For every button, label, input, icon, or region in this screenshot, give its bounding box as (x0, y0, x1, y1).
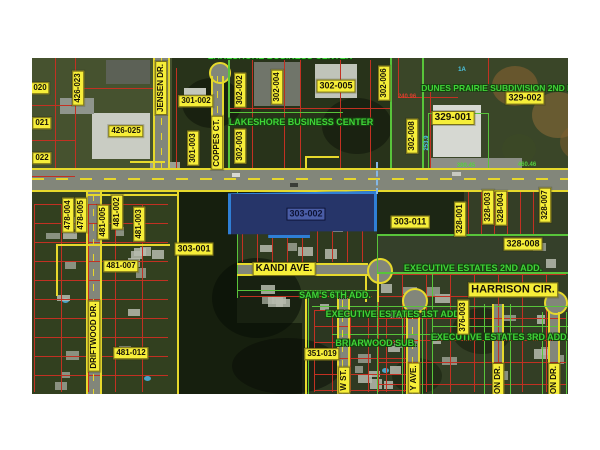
parcel-label: 021 (32, 117, 51, 129)
subdivision-boundary (422, 58, 424, 170)
parcel-label: 022 (32, 152, 51, 164)
lot-line (115, 204, 116, 392)
building (65, 262, 76, 269)
vehicle (452, 172, 461, 176)
parcel-label: 328-004 (495, 190, 507, 225)
block-boundary (305, 156, 307, 168)
subdivision-boundary (542, 312, 543, 394)
parcel-label: 302-004 (271, 69, 283, 104)
survey-dimension: 460.46 (518, 162, 536, 168)
block-boundary (177, 192, 179, 394)
subdivision-boundary (484, 304, 485, 394)
block-boundary (130, 161, 165, 163)
road-label: JENSEN DR. (155, 61, 167, 115)
subdivision-boundary (377, 234, 568, 236)
lot-line (32, 140, 75, 141)
block-boundary (88, 194, 178, 196)
lot-line (34, 204, 35, 392)
parcel-label: 481-005 (97, 204, 109, 239)
parcel-label: 376-003 (457, 299, 469, 334)
subdivision-boundary (312, 306, 568, 307)
highway-centerline (32, 178, 568, 180)
lot-line (55, 58, 56, 168)
subdivision-boundary (228, 112, 343, 113)
subdivision-boundary (422, 310, 423, 394)
subdivision-label: LAKESHORE BUSINESS CENTER (229, 117, 374, 127)
selected-parcel-label: 303-002 (286, 208, 325, 221)
survey-dimension: 253.9 (424, 135, 430, 150)
lot-line (533, 192, 534, 234)
subdivision-label: LAKESHORE BUSINESS CENTER (208, 58, 353, 61)
scanned-parcel-map-page: 020021022426-023426-025301-002301-003302… (0, 0, 600, 450)
parcel-label: 478-005 (75, 197, 87, 232)
block-boundary (377, 274, 379, 302)
terrain-patch (377, 192, 465, 236)
lot-line (404, 310, 405, 392)
lot-line (32, 105, 75, 106)
building (546, 259, 557, 268)
parcel-label: 328-001 (454, 201, 466, 236)
subdivision-boundary (510, 304, 511, 394)
parcel-label: 301-003 (187, 130, 199, 165)
parcel-label: 426-023 (72, 70, 84, 105)
subdivision-label: EXECUTIVE ESTATES 3RD ADD. (431, 332, 568, 342)
subdivision-label: SAM'S 6TH ADD. (299, 290, 371, 300)
subdivision-boundary (228, 58, 230, 170)
parcel-label: 302-006 (378, 65, 390, 100)
parcel-label: 329-002 (505, 92, 544, 105)
parcel-label: 481-002 (111, 194, 123, 229)
road-label: W ST. (338, 366, 350, 393)
lot-line (314, 390, 406, 391)
parcel-label: 302-005 (316, 80, 355, 93)
parcel-label: 478-004 (62, 197, 74, 232)
building (298, 247, 313, 256)
parcel-label: 328-007 (539, 187, 551, 222)
survey-dimension: 300.45 (457, 163, 475, 169)
building (106, 60, 150, 84)
lot-line (300, 60, 301, 168)
lot-line (252, 60, 253, 168)
parcel-label: 328-003 (482, 189, 494, 224)
building (381, 284, 392, 293)
building (152, 250, 164, 258)
road-label: COPPES CT. (211, 116, 223, 170)
road-label: ON DR. (492, 363, 504, 394)
vehicle (290, 183, 298, 187)
parcel-label: 328-008 (503, 238, 542, 251)
parcel-map-canvas[interactable]: 020021022426-023426-025301-002301-003302… (32, 58, 568, 394)
pool (144, 376, 151, 381)
block-boundary (56, 244, 58, 296)
road-label: Y AVE. (408, 362, 420, 393)
parcel-label: 302-003 (234, 128, 246, 163)
building (287, 243, 297, 251)
lot-line (468, 192, 469, 234)
terrain-patch (464, 192, 568, 234)
parcel-label: 302-008 (406, 118, 418, 153)
road-label: DRIFTWOOD DR. (88, 300, 100, 371)
road-label: ON DR. (548, 363, 560, 394)
subdivision-boundary (402, 310, 403, 394)
subdivision-label: DUNES PRAIRIE SUBDIVISION 2ND P (421, 83, 568, 93)
parcel-label: 481-003 (133, 206, 145, 241)
parcel-label: 351-019 (304, 348, 339, 360)
lot-line (426, 274, 427, 392)
lot-line (75, 88, 153, 89)
building (63, 232, 77, 238)
parcel-label: 426-025 (108, 125, 143, 137)
building (355, 366, 364, 373)
building (131, 251, 142, 258)
block-boundary (32, 168, 568, 170)
lot-line (368, 310, 369, 392)
parcel-label: 020 (32, 82, 50, 94)
parcel-label: 303-001 (174, 243, 213, 256)
lot-line (314, 326, 406, 327)
road-label: HARRISON CIR. (468, 282, 558, 297)
block-boundary (56, 244, 170, 246)
lot-line (350, 310, 351, 392)
parcel-label: 329-001 (432, 111, 475, 125)
lot-line (378, 274, 566, 275)
highway (32, 170, 568, 190)
lot-line (32, 176, 75, 177)
lot-line (430, 90, 431, 168)
road-label: KANDI AVE. (253, 262, 316, 276)
lot-line (370, 60, 371, 168)
parcel-label: 303-011 (391, 216, 430, 229)
parcel-label: 301-002 (178, 95, 213, 107)
tree-canopy (232, 338, 342, 394)
survey-dimension: 240.96 (398, 94, 416, 100)
subdivision-label: BRIARWOOD SUB. (335, 338, 416, 348)
subdivision-label: EXECUTIVE ESTATES 2ND ADD. (404, 263, 542, 273)
building (272, 297, 286, 304)
survey-dimension: 1A (458, 67, 466, 73)
lot-line (176, 68, 177, 168)
boundary-dashed-blue (376, 162, 378, 194)
subdivision-boundary (390, 58, 392, 170)
lot-line (520, 192, 521, 234)
lot-line (340, 60, 341, 168)
lot-line (386, 310, 387, 392)
lot-line (398, 58, 399, 98)
cul-de-sac (367, 258, 393, 284)
block-boundary (168, 58, 170, 168)
parcel-label: 481-007 (103, 260, 138, 272)
parcel-label: 302-002 (234, 72, 246, 107)
subdivision-boundary (488, 113, 489, 168)
block-boundary (305, 298, 307, 394)
building (46, 233, 59, 239)
subdivision-label: EXECUTIVE ESTATES 1ST ADD. (326, 309, 463, 319)
subdivision-boundary (308, 298, 309, 394)
lot-line (507, 192, 508, 234)
vehicle (232, 173, 240, 177)
parcel-label: 481-012 (113, 347, 148, 359)
lot-line (314, 374, 406, 375)
lot-line (488, 58, 489, 84)
lot-line (284, 60, 285, 168)
building (128, 309, 140, 316)
block-boundary (305, 156, 339, 158)
subdivision-boundary (566, 312, 567, 394)
